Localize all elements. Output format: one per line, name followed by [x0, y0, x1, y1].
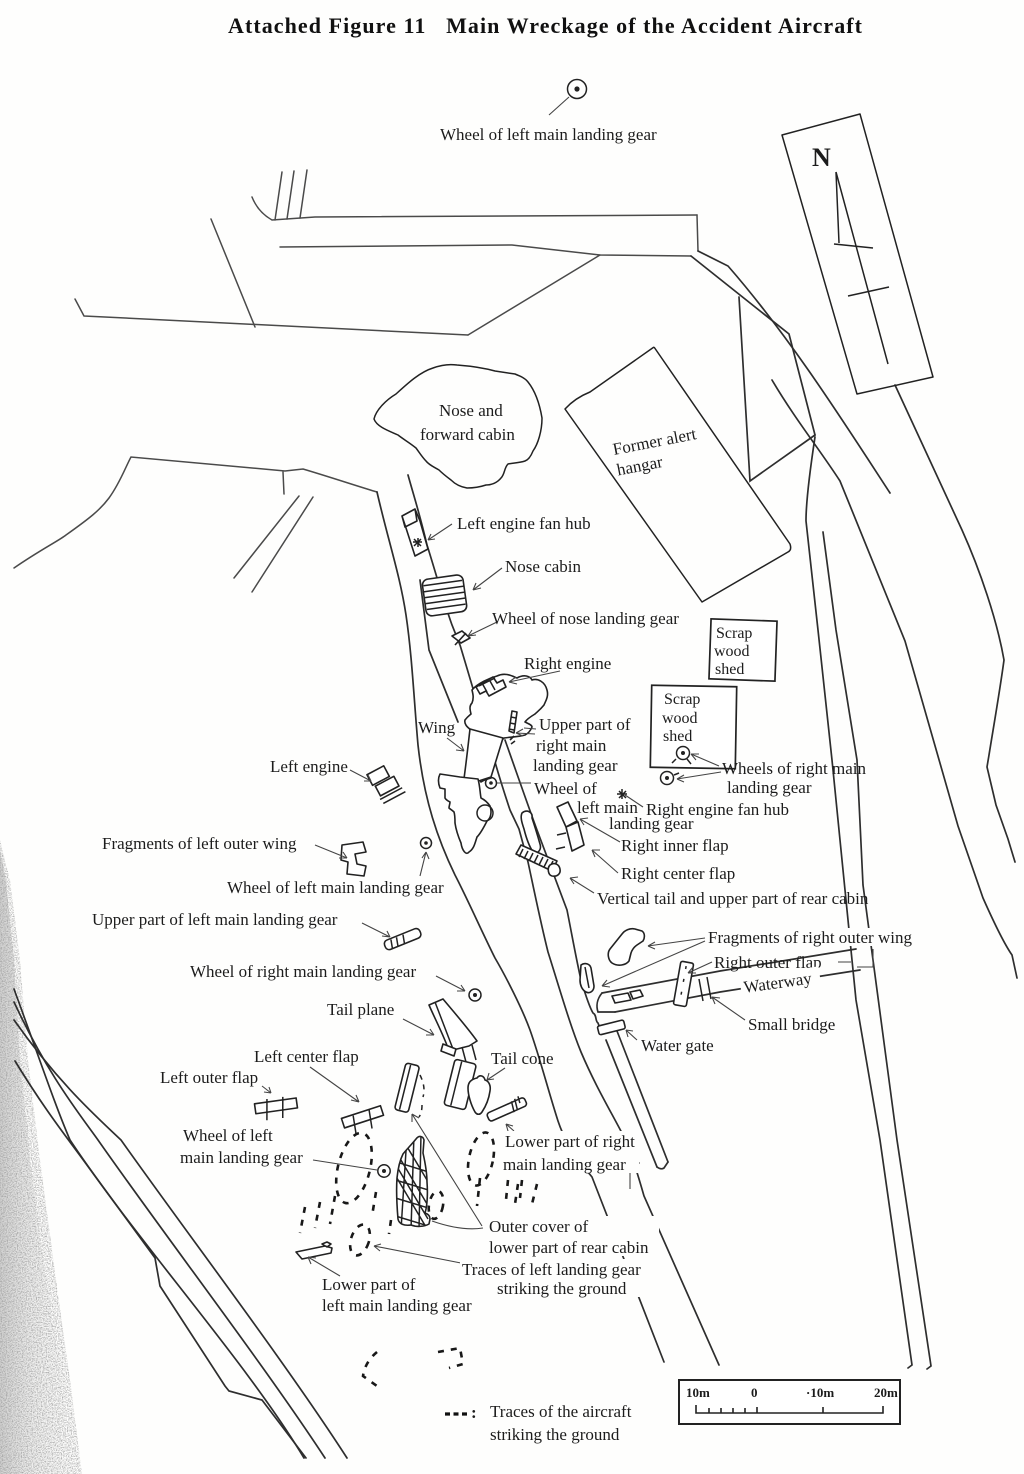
- svg-text:Wheel of left main landing gea: Wheel of left main landing gear: [440, 125, 657, 144]
- svg-text:forward cabin: forward cabin: [420, 425, 515, 444]
- svg-text:Nose cabin: Nose cabin: [505, 557, 582, 576]
- svg-text:Right center flap: Right center flap: [621, 864, 735, 883]
- svg-text:Left engine fan hub: Left engine fan hub: [457, 514, 591, 533]
- svg-text:20m: 20m: [874, 1385, 898, 1400]
- svg-text:Tail cone: Tail cone: [491, 1049, 554, 1068]
- svg-text:Wheel of right main landing ge: Wheel of right main landing gear: [190, 962, 416, 981]
- svg-text:Wheel of left: Wheel of left: [183, 1126, 273, 1145]
- svg-text:main landing gear: main landing gear: [180, 1148, 303, 1167]
- svg-text:Nose and: Nose and: [439, 401, 503, 420]
- svg-text:Wing: Wing: [418, 718, 456, 737]
- svg-text:Scrap: Scrap: [664, 691, 700, 708]
- svg-text:Fragments of left outer wing: Fragments of left outer wing: [102, 834, 297, 853]
- svg-text::: :: [471, 1403, 477, 1422]
- svg-text:left main landing gear: left main landing gear: [322, 1296, 472, 1315]
- svg-text:Upper part of: Upper part of: [539, 715, 631, 734]
- svg-text:Water gate: Water gate: [641, 1036, 714, 1055]
- svg-text:Traces of left landing gear: Traces of left landing gear: [462, 1260, 641, 1279]
- svg-text:Wheel of left main landing gea: Wheel of left main landing gear: [227, 878, 444, 897]
- svg-text:Small bridge: Small bridge: [748, 1015, 835, 1034]
- svg-text:N: N: [812, 143, 831, 172]
- svg-text:Left outer flap: Left outer flap: [160, 1068, 258, 1087]
- svg-text:Vertical tail and upper part o: Vertical tail and upper part of rear cab…: [597, 889, 869, 908]
- svg-text:landing gear: landing gear: [727, 778, 812, 797]
- svg-text:Fragments of right outer wing: Fragments of right outer wing: [708, 928, 912, 947]
- svg-text:striking the ground: striking the ground: [497, 1279, 627, 1298]
- svg-text:shed: shed: [663, 728, 692, 745]
- svg-text:Right engine fan hub: Right engine fan hub: [646, 800, 789, 819]
- svg-text:Left center flap: Left center flap: [254, 1047, 359, 1066]
- svg-text:wood: wood: [714, 643, 750, 660]
- svg-text:Attached Figure 11 Main Wrec: Attached Figure 11 Main Wreckage of the …: [228, 13, 863, 38]
- svg-text:shed: shed: [715, 661, 744, 678]
- svg-text:wood: wood: [662, 710, 698, 727]
- svg-text:striking the ground: striking the ground: [490, 1425, 620, 1444]
- svg-text:10m: 10m: [686, 1385, 710, 1400]
- svg-text:right main: right main: [536, 736, 607, 755]
- svg-text:Lower part of right: Lower part of right: [505, 1132, 635, 1151]
- svg-text:Outer cover of: Outer cover of: [489, 1217, 588, 1236]
- svg-text:Left engine: Left engine: [270, 757, 348, 776]
- svg-text:·10m: ·10m: [806, 1385, 834, 1400]
- svg-text:Right engine: Right engine: [524, 654, 611, 673]
- svg-text:Scrap: Scrap: [716, 625, 752, 642]
- svg-text:Wheel of nose landing gear: Wheel of nose landing gear: [492, 609, 679, 628]
- svg-text:Right inner flap: Right inner flap: [621, 836, 729, 855]
- svg-text:0: 0: [751, 1385, 758, 1400]
- svg-text:Traces of the aircraft: Traces of the aircraft: [490, 1402, 632, 1421]
- svg-text:Wheel of: Wheel of: [534, 779, 597, 798]
- svg-text:lower part of rear cabin: lower part of rear cabin: [489, 1238, 649, 1257]
- svg-text:Upper part of left main landin: Upper part of left main landing gear: [92, 910, 338, 929]
- svg-text:Lower part of: Lower part of: [322, 1275, 416, 1294]
- svg-text:Tail plane: Tail plane: [327, 1000, 394, 1019]
- svg-text:main landing gear: main landing gear: [503, 1155, 626, 1174]
- svg-text:landing gear: landing gear: [533, 756, 618, 775]
- svg-text:Wheels of right main: Wheels of right main: [722, 759, 866, 778]
